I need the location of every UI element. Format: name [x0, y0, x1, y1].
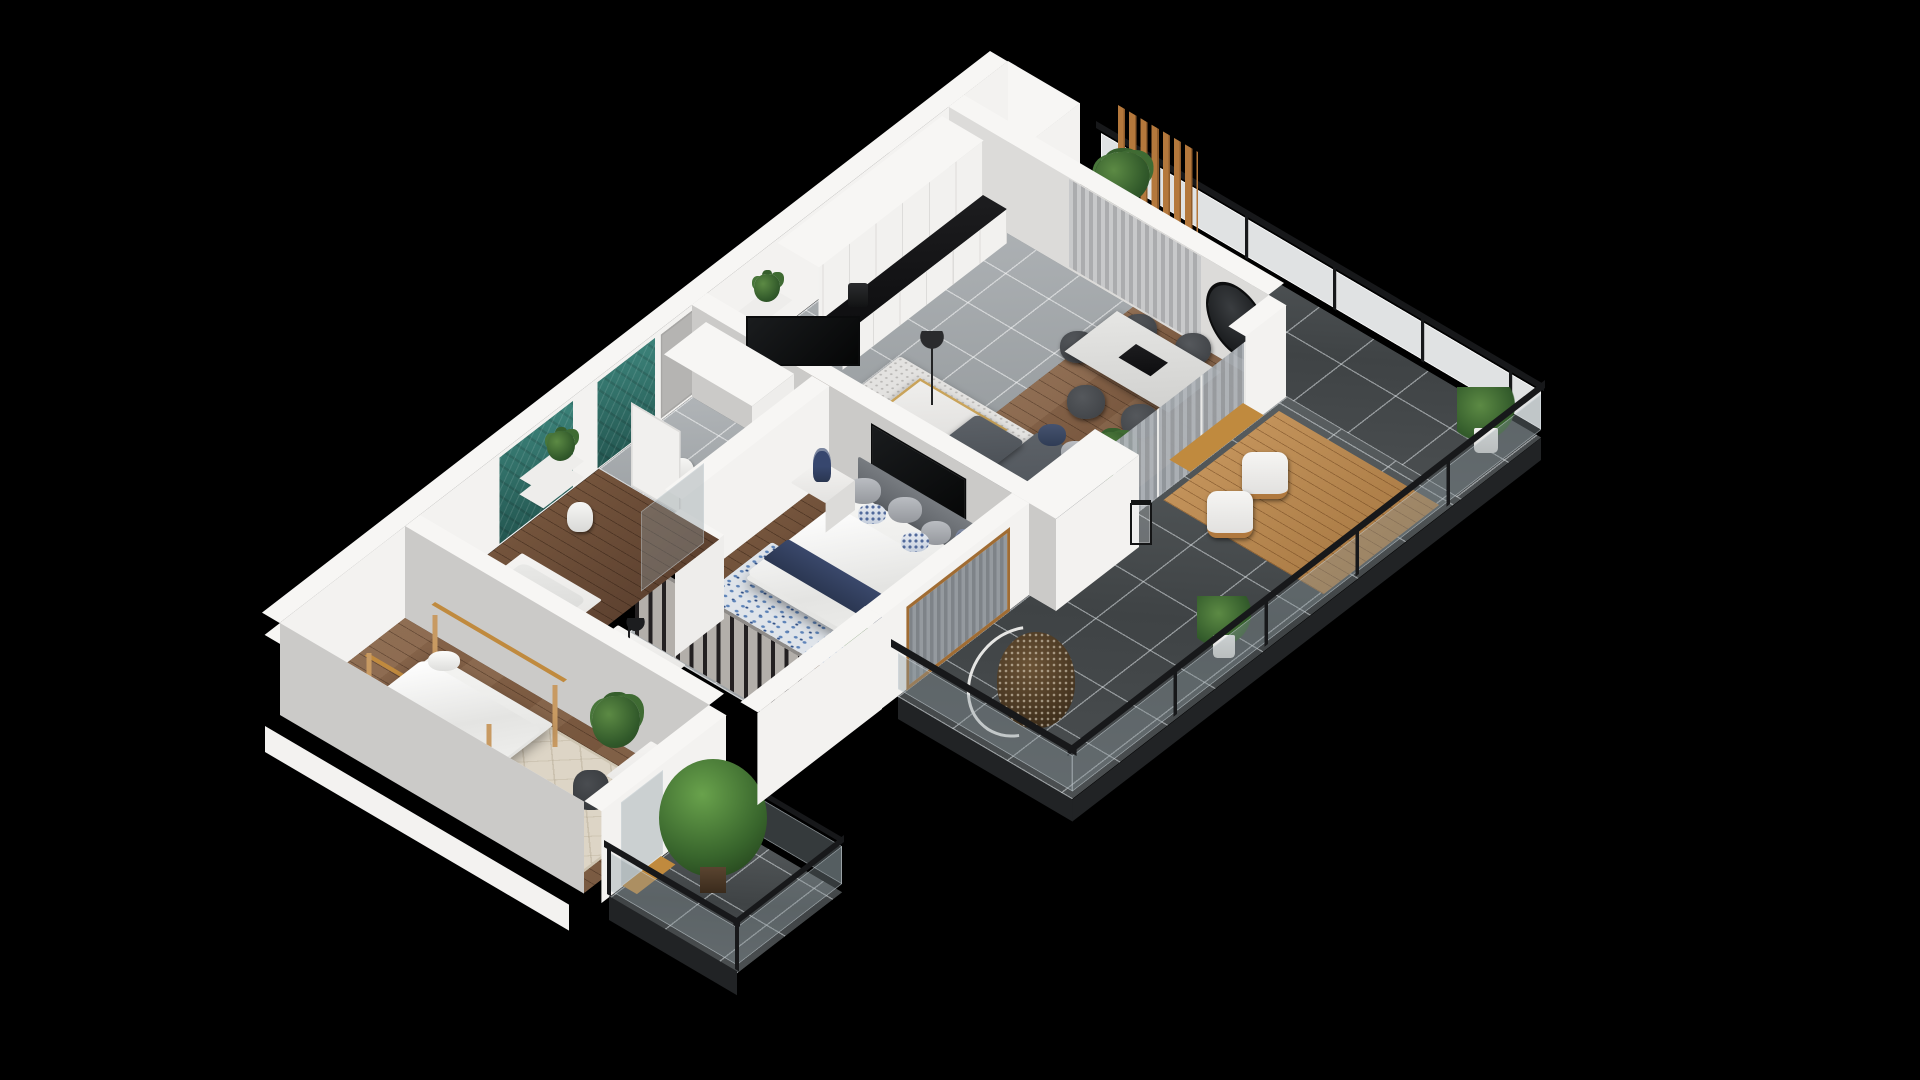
railing-post: [1174, 668, 1178, 717]
floor-plan-scene: [0, 0, 1920, 1080]
bed-pillow-blue: [858, 504, 886, 524]
bed-pillow-blue: [901, 532, 929, 552]
coffee-machine: [848, 283, 868, 307]
railing-post: [1447, 458, 1451, 507]
nightstand-lamp: [813, 448, 831, 482]
balcony-tree: [659, 759, 767, 877]
bed-pillow: [888, 497, 922, 523]
railing-post: [1421, 315, 1424, 363]
railing-post: [1265, 598, 1269, 647]
bathroom-toilet: [567, 502, 593, 532]
house-bed-post: [552, 685, 557, 747]
dining-chair: [1067, 385, 1105, 419]
lounge-chair: [1242, 452, 1288, 499]
railing-post: [1356, 528, 1360, 577]
terrace-lantern: [1130, 503, 1152, 545]
floor-lamp: [910, 331, 954, 405]
railing-post: [1245, 212, 1248, 260]
sofa-pillow: [1038, 424, 1066, 446]
railing-post: [1333, 263, 1336, 311]
railing-post: [607, 842, 611, 896]
kids-bed-pillow: [428, 651, 460, 671]
railing-post: [735, 917, 739, 971]
lounge-chair: [1207, 491, 1253, 538]
